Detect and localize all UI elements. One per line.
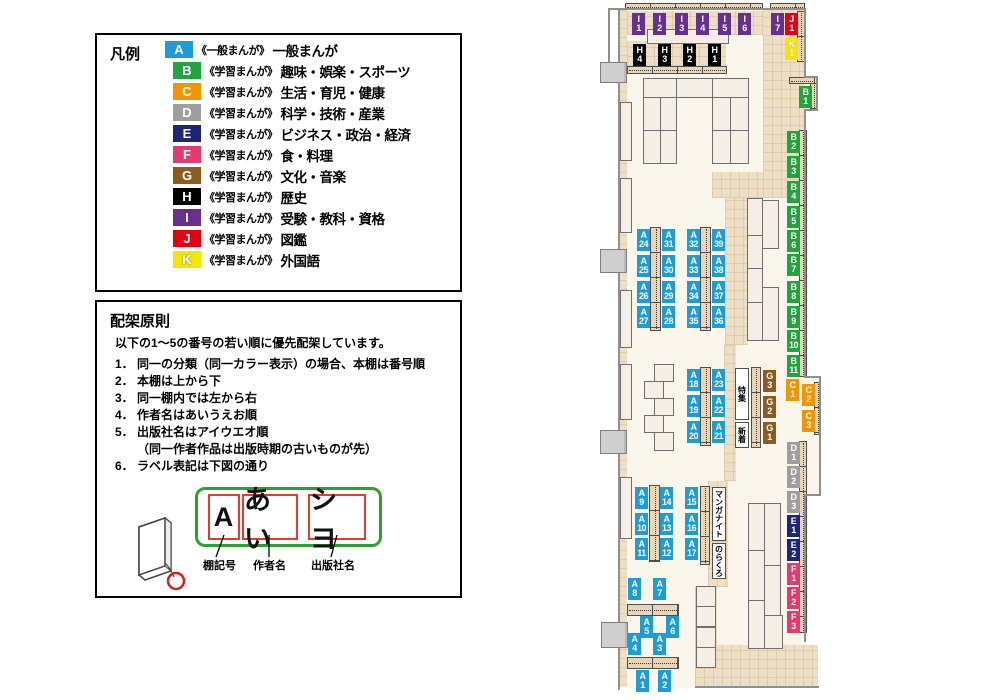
category-label: 一般まんが: [273, 40, 338, 60]
shelf-tag-A37: A37: [712, 281, 725, 303]
legend-row-I: I《学習まんが》受験・教科・資格: [173, 207, 411, 228]
map-wall: [816, 76, 818, 111]
shelf-unit: [747, 302, 763, 341]
map-wall: [804, 494, 821, 496]
shelf-tag-I1: I1: [632, 13, 645, 35]
table: [654, 432, 674, 451]
shelf-tag-A6: A6: [666, 616, 679, 638]
principles-title: 配架原則: [110, 310, 170, 331]
table: [644, 381, 664, 399]
rule-1: 1．同一の分類（同一カラー表示）の場合、本棚は番号順: [115, 356, 425, 373]
legend-row-H: H《学習まんが》歴史: [173, 186, 411, 207]
shelf-tag-A17: A17: [685, 538, 698, 560]
category-label: 外国語: [281, 250, 320, 270]
label-segment-shelf-code: A: [208, 494, 240, 540]
category-label: 趣味・娯楽・スポーツ: [281, 61, 411, 81]
shelf-tag-A39: A39: [712, 229, 725, 251]
rule-5-sub: （同一作者作品は出版時期の古いものが先）: [137, 441, 425, 458]
principles-intro: 以下の1～5の番号の若い順に優先配架しています。: [115, 334, 391, 351]
shelf-tag-A4: A4: [628, 633, 641, 655]
shelf-strip: [627, 66, 727, 74]
shelf-unit: [762, 200, 779, 249]
shelf-tag-C2: C2: [802, 384, 815, 406]
legend-row-C: C《学習まんが》生活・育児・健康: [173, 81, 411, 102]
shelf-strip: [627, 657, 679, 669]
shelf-tag-B10: B10: [787, 330, 800, 352]
category-chip-G: G: [173, 167, 201, 184]
table: [654, 364, 674, 382]
category-label: 図鑑: [281, 229, 307, 249]
legend-panel: 凡例 A《一般まんが》一般まんがB《学習まんが》趣味・娯楽・スポーツC《学習まん…: [95, 33, 462, 292]
door: [600, 430, 627, 454]
shelf-tag-A21: A21: [712, 421, 725, 443]
shelf-unit: [748, 503, 765, 551]
wall-shelf: [620, 178, 632, 233]
shelf-tag-A26: A26: [637, 281, 650, 303]
category-chip-C: C: [173, 83, 201, 100]
shelf-tag-G1: G1: [763, 422, 776, 444]
shelf-tag-B6: B6: [787, 230, 800, 252]
shelf-strip: [751, 367, 761, 448]
shelf-tag-C1: C1: [786, 379, 799, 401]
walkway: [725, 198, 748, 345]
shelf-tag-I6: I6: [738, 13, 751, 35]
rule-5: 5．出版社名はアイウエオ順: [115, 424, 425, 441]
shelf-unit: [643, 97, 661, 131]
shelf-tag-A38: A38: [712, 255, 725, 277]
shelf-tag-A12: A12: [660, 538, 673, 560]
shelf-strip: [700, 227, 711, 331]
shelf-tag-B4: B4: [787, 181, 800, 203]
shelf-tag-E1: E1: [787, 515, 800, 537]
book-icon: [127, 507, 197, 597]
table: [696, 627, 716, 648]
legend-row-K: K《学習まんが》外国語: [173, 249, 411, 270]
shelf-tag-A30: A30: [662, 255, 675, 277]
map-wall: [608, 8, 610, 64]
shelf-tag-B5: B5: [787, 206, 800, 228]
map-wall: [819, 376, 821, 496]
area-label-manga-night: マンガナイト: [712, 487, 726, 541]
rule-text: ラベル表記は下図の通り: [137, 458, 269, 475]
shelf-tag-H4: H4: [633, 44, 646, 66]
category-label: 科学・技術・産業: [281, 103, 385, 123]
shelf-tag-A22: A22: [712, 395, 725, 417]
category-label: 受験・教科・資格: [281, 208, 385, 228]
callout-lines: [97, 535, 464, 559]
shelf-unit: [730, 130, 749, 164]
shelf-tag-A20: A20: [687, 421, 700, 443]
shelf-tag-D3: D3: [787, 491, 800, 513]
shelf-tag-A11: A11: [635, 538, 648, 560]
legend-row-J: J《学習まんが》図鑑: [173, 228, 411, 249]
shelf-unit: [643, 130, 661, 164]
category-kind: 《学習まんが》: [204, 189, 278, 205]
shelf-tag-A19: A19: [687, 395, 700, 417]
shelf-unit: [764, 615, 783, 649]
shelf-unit: [660, 130, 677, 164]
table: [644, 415, 664, 433]
category-chip-K: K: [173, 251, 201, 268]
map-wall: [804, 8, 806, 78]
shelf-unit: [748, 550, 765, 601]
shelf-tag-A7: A7: [653, 578, 666, 600]
shelf-tag-G2: G2: [763, 396, 776, 418]
shelf-strip: [650, 227, 661, 331]
category-chip-E: E: [173, 125, 201, 142]
category-kind: 《学習まんが》: [204, 231, 278, 247]
legend-row-B: B《学習まんが》趣味・娯楽・スポーツ: [173, 60, 411, 81]
shelf-tag-A9: A9: [635, 487, 648, 509]
area-label-tokushu: 特集: [735, 368, 749, 420]
category-kind: 《学習まんが》: [204, 84, 278, 100]
shelf-tag-A2: A2: [658, 670, 671, 692]
rule-text: 出版社名はアイウエオ順: [137, 424, 268, 441]
shelf-tag-F2: F2: [787, 587, 800, 609]
shelf-tag-B1: B1: [799, 86, 812, 108]
shelf-unit: [676, 78, 713, 98]
legend-row-A: A《一般まんが》一般まんが: [165, 39, 411, 60]
category-label: ビジネス・政治・経済: [281, 124, 411, 144]
shelf-unit: [748, 600, 765, 649]
rule-number: 6．: [115, 458, 137, 475]
shelf-tag-B7: B7: [787, 254, 800, 276]
rule-text: 同一の分類（同一カラー表示）の場合、本棚は番号順: [137, 356, 425, 373]
shelf-tag-H2: H2: [683, 44, 696, 66]
shelf-tag-A14: A14: [660, 487, 673, 509]
rule-2: 2．本棚は上から下: [115, 373, 425, 390]
map-wall: [695, 686, 819, 688]
category-chip-F: F: [173, 146, 201, 163]
shelf-tag-G3: G3: [763, 370, 776, 392]
category-chip-H: H: [173, 188, 201, 205]
shelf-tag-A31: A31: [662, 229, 675, 251]
legend-title: 凡例: [110, 43, 140, 64]
map-wall: [804, 494, 806, 642]
shelf-tag-A15: A15: [685, 487, 698, 509]
walkway: [712, 172, 763, 198]
shelf-tag-D1: D1: [787, 442, 800, 464]
shelf-tag-B9: B9: [787, 306, 800, 328]
rule-number: 3．: [115, 390, 137, 407]
shelf-tag-A13: A13: [660, 513, 673, 535]
shelf-tag-F1: F1: [787, 563, 800, 585]
table: [696, 647, 716, 668]
shelf-unit: [643, 78, 677, 98]
label-segment-author: あい: [242, 494, 298, 540]
shelf-tag-I7: I7: [771, 13, 784, 35]
wall-shelf: [620, 102, 632, 161]
shelf-tag-A18: A18: [687, 369, 700, 391]
shelf-tag-A8: A8: [628, 578, 641, 600]
shelf-strip: [789, 77, 817, 84]
category-kind: 《学習まんが》: [204, 105, 278, 121]
shelf-unit: [712, 78, 749, 98]
caption-publisher: 出版社名: [311, 557, 355, 573]
rule-3: 3．同一棚内では左から右: [115, 390, 425, 407]
shelf-unit: [712, 97, 731, 131]
legend-row-D: D《学習まんが》科学・技術・産業: [173, 102, 411, 123]
table: [696, 586, 716, 607]
category-kind: 《学習まんが》: [204, 126, 278, 142]
rule-text: 本棚は上から下: [137, 373, 221, 390]
shelf-tag-A28: A28: [662, 306, 675, 328]
category-kind: 《学習まんが》: [204, 252, 278, 268]
shelf-tag-K1: K1: [785, 38, 798, 60]
map-wall: [608, 8, 806, 10]
legend-row-E: E《学習まんが》ビジネス・政治・経済: [173, 123, 411, 144]
category-label: 食・料理: [281, 145, 333, 165]
wall-shelf: [620, 290, 632, 348]
shelf-tag-F3: F3: [787, 611, 800, 633]
table: [654, 398, 674, 416]
shelf-tag-A27: A27: [637, 306, 650, 328]
category-kind: 《学習まんが》: [204, 168, 278, 184]
shelf-tag-A5: A5: [640, 616, 653, 638]
shelf-tag-A24: A24: [637, 229, 650, 251]
shelf-strip: [627, 604, 679, 616]
shelf-tag-B2: B2: [787, 131, 800, 153]
shelf-tag-B11: B11: [787, 355, 800, 377]
category-chip-J: J: [173, 230, 201, 247]
shelf-tag-A29: A29: [662, 281, 675, 303]
category-kind: 《一般まんが》: [196, 42, 270, 58]
category-kind: 《学習まんが》: [204, 147, 278, 163]
label-frame: [195, 487, 382, 547]
shelf-unit: [762, 287, 779, 341]
shelf-tag-I5: I5: [718, 13, 731, 35]
shelf-tag-I2: I2: [653, 13, 666, 35]
category-kind: 《学習まんが》: [204, 210, 278, 226]
shelf-tag-D2: D2: [787, 466, 800, 488]
shelf-tag-A33: A33: [687, 255, 700, 277]
map-wall: [804, 109, 806, 378]
legend-row-G: G《学習まんが》文化・音楽: [173, 165, 411, 186]
area-label-shinchaku: 新着: [735, 422, 749, 448]
principles-panel: 配架原則 以下の1～5の番号の若い順に優先配架しています。 1．同一の分類（同一…: [95, 300, 462, 598]
category-kind: 《学習まんが》: [204, 63, 278, 79]
shelf-tag-I4: I4: [696, 13, 709, 35]
shelf-tag-A35: A35: [687, 306, 700, 328]
shelf-unit: [764, 565, 781, 616]
shelf-tag-E2: E2: [787, 539, 800, 561]
shelf-tag-A25: A25: [637, 255, 650, 277]
category-label: 生活・育児・健康: [281, 82, 385, 102]
label-segment-publisher: シヨ: [308, 494, 366, 540]
shelf-unit: [747, 268, 763, 303]
shelf-tag-A32: A32: [687, 229, 700, 251]
shelf-unit: [747, 235, 763, 269]
legend-row-F: F《学習まんが》食・料理: [173, 144, 411, 165]
category-chip-B: B: [173, 62, 201, 79]
shelf-tag-B3: B3: [787, 156, 800, 178]
shelf-strip: [700, 486, 710, 565]
rule-number: 2．: [115, 373, 137, 390]
category-chip-I: I: [173, 209, 201, 226]
rule-text: 作者名はあいうえお順: [137, 407, 257, 424]
shelf-strip: [700, 367, 711, 446]
caption-shelf-code: 棚記号: [203, 557, 236, 573]
rule-number: 4．: [115, 407, 137, 424]
shelf-tag-I3: I3: [675, 13, 688, 35]
wall-shelf: [620, 364, 632, 420]
shelf-tag-A16: A16: [685, 513, 698, 535]
shelf-tag-H1: H1: [708, 44, 721, 66]
shelf-tag-A1: A1: [636, 670, 649, 692]
shelf-unit: [747, 198, 763, 236]
wall-shelf: [620, 477, 632, 539]
shelf-unit: [660, 97, 677, 131]
legend-rows: A《一般まんが》一般まんがB《学習まんが》趣味・娯楽・スポーツC《学習まんが》生…: [165, 39, 411, 270]
map-wall: [804, 109, 818, 111]
shelf-tag-A36: A36: [712, 306, 725, 328]
rule-4: 4．作者名はあいうえお順: [115, 407, 425, 424]
category-chip-D: D: [173, 104, 201, 121]
rule-text: 同一棚内では左から右: [137, 390, 257, 407]
area-label-norakuro: のらくろ: [712, 543, 726, 579]
door: [601, 622, 628, 648]
rule-6: 6．ラベル表記は下図の通り: [115, 458, 425, 475]
shelf-unit: [712, 130, 731, 164]
shelf-tag-H3: H3: [658, 44, 671, 66]
category-chip-A: A: [165, 41, 193, 58]
shelf-tag-A10: A10: [635, 513, 648, 535]
shelf-tag-A34: A34: [687, 281, 700, 303]
category-label: 文化・音楽: [281, 166, 346, 186]
shelf-tag-A23: A23: [712, 369, 725, 391]
shelf-tag-B8: B8: [787, 281, 800, 303]
shelf-tag-C3: C3: [802, 410, 815, 432]
rule-number: 5．: [115, 424, 137, 441]
shelf-tag-A3: A3: [653, 633, 666, 655]
map-wall: [618, 8, 620, 690]
shelf-unit: [764, 503, 781, 566]
shelf-tag-J1: J1: [785, 13, 798, 35]
shelf-unit: [730, 97, 749, 131]
category-label: 歴史: [281, 187, 307, 207]
caption-author: 作者名: [253, 557, 286, 573]
rule-number: 1．: [115, 356, 137, 373]
principles-rules: 1．同一の分類（同一カラー表示）の場合、本棚は番号順2．本棚は上から下3．同一棚…: [115, 356, 425, 475]
table: [696, 606, 716, 627]
door: [600, 249, 627, 273]
shelf-strip: [649, 485, 660, 562]
door: [600, 62, 627, 83]
